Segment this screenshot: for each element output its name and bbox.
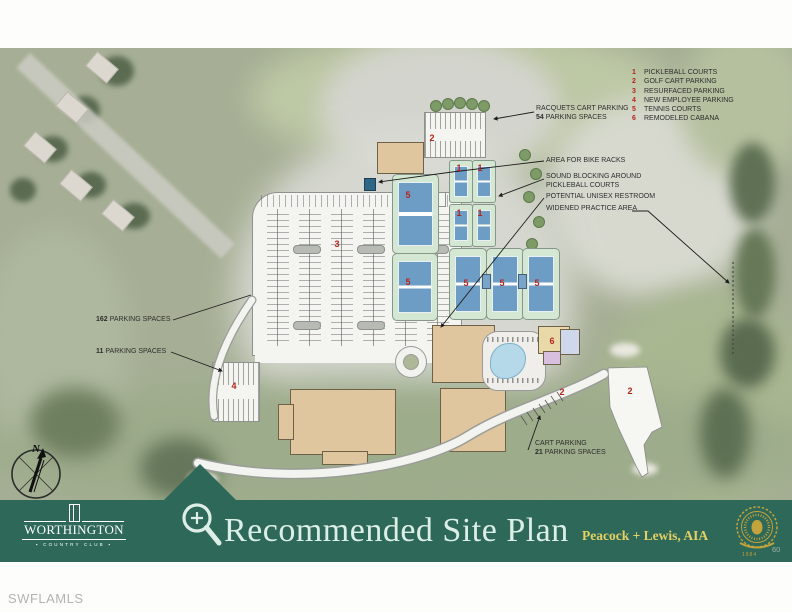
new-employee-parking xyxy=(212,362,260,422)
club-subtitle-text: COUNTRY CLUB xyxy=(43,542,105,547)
legend-item-label: RESURFACED PARKING xyxy=(644,88,725,95)
tree xyxy=(519,149,531,161)
tree-cluster xyxy=(700,388,750,478)
legend-item: 2GOLF CART PARKING xyxy=(632,77,734,86)
tree xyxy=(442,98,454,110)
bike-racks-area xyxy=(364,178,376,191)
tennis-court xyxy=(392,253,438,321)
tree xyxy=(430,100,442,112)
marker-new-employee-parking: 4 xyxy=(228,381,240,391)
club-subtitle: ▪ COUNTRY CLUB ▪ xyxy=(22,542,126,547)
legend-item-number: 1 xyxy=(632,68,644,77)
clubhouse-building xyxy=(290,389,396,455)
legend-item-number: 2 xyxy=(632,77,644,86)
label-racquets-cart-parking: RACQUETS CART PARKING 54PARKING SPACES xyxy=(536,104,629,122)
label-line: PARKING SPACES xyxy=(105,348,166,355)
club-name: WORTHINGTON xyxy=(22,522,126,540)
tree xyxy=(478,100,490,112)
sand-bunker xyxy=(632,463,658,475)
court-gate xyxy=(482,274,491,289)
court-gate xyxy=(518,274,527,289)
space-count: 21 xyxy=(535,449,545,456)
tree xyxy=(523,191,535,203)
tree xyxy=(533,216,545,228)
tree-cluster xyxy=(735,228,775,318)
marker-pickleball-courts: 1 xyxy=(453,163,465,173)
legend-item-number: 6 xyxy=(632,114,644,123)
worthington-logo: WORTHINGTON ▪ COUNTRY CLUB ▪ xyxy=(22,504,126,556)
legend-item: 5TENNIS COURTS xyxy=(632,105,734,114)
magnifier-icon xyxy=(180,501,226,549)
traffic-circle xyxy=(396,347,426,377)
marker-golf-cart-parking: 2 xyxy=(426,133,438,143)
architect-credit: Peacock + Lewis, AIA xyxy=(582,528,708,544)
label-line: PICKLEBALL COURTS xyxy=(546,181,641,190)
clubhouse-building xyxy=(322,451,368,465)
label-bike-racks: AREA FOR BIKE RACKS xyxy=(546,156,625,165)
parking-stalls xyxy=(267,209,289,347)
racquets-building xyxy=(377,142,424,174)
square-divider-icon: ▪ xyxy=(36,542,40,547)
compass-rose: N xyxy=(6,440,68,500)
tree xyxy=(530,168,542,180)
seal-year: 1984 xyxy=(742,552,757,558)
label-sound-blocking: SOUND BLOCKING AROUND PICKLEBALL COURTS xyxy=(546,172,641,190)
tree xyxy=(466,98,478,110)
legend: 1PICKLEBALL COURTS 2GOLF CART PARKING 3R… xyxy=(632,68,734,124)
lounge-chairs xyxy=(487,337,541,342)
label-line: 54PARKING SPACES xyxy=(536,113,629,122)
legend-item: 6REMODELED CABANA xyxy=(632,114,734,123)
marker-tennis-courts: 5 xyxy=(402,277,414,287)
space-count: 54 xyxy=(536,114,546,121)
title-banner: WORTHINGTON ▪ COUNTRY CLUB ▪ Recommended… xyxy=(0,500,792,562)
tree-cluster xyxy=(730,143,775,223)
marker-golf-cart-parking: 2 xyxy=(624,386,636,396)
label-practice-area: WIDENED PRACTICE AREA xyxy=(546,204,637,213)
legend-item-label: TENNIS COURTS xyxy=(644,106,701,113)
marker-tennis-courts: 5 xyxy=(496,278,508,288)
parking-stalls xyxy=(331,209,353,347)
square-divider-icon: ▪ xyxy=(108,542,112,547)
label-line: PARKING SPACES xyxy=(110,316,171,323)
label-line: RACQUETS CART PARKING xyxy=(536,104,629,113)
site-plan-flyer: 1PICKLEBALL COURTS 2GOLF CART PARKING 3R… xyxy=(0,0,792,612)
parking-island xyxy=(293,245,321,254)
tennis-court-surface xyxy=(398,261,432,313)
remodeled-cabana xyxy=(543,351,561,365)
space-count: 11 xyxy=(96,348,105,355)
legend-item-label: GOLF CART PARKING xyxy=(644,78,717,85)
lounge-chairs xyxy=(487,378,541,383)
label-unisex-restroom: POTENTIAL UNISEX RESTROOM xyxy=(546,192,655,201)
remodeled-cabana xyxy=(560,329,580,355)
legend-item: 4NEW EMPLOYEE PARKING xyxy=(632,96,734,105)
aerial-site-plan-map: 1PICKLEBALL COURTS 2GOLF CART PARKING 3R… xyxy=(0,48,792,500)
label-line: SOUND BLOCKING AROUND xyxy=(546,172,641,181)
tennis-court xyxy=(392,174,439,254)
compass-north-label: N xyxy=(31,443,41,455)
drive-aisle xyxy=(255,346,460,363)
space-count: 162 xyxy=(96,316,110,323)
marker-resurfaced-parking: 3 xyxy=(331,239,343,249)
marker-pickleball-courts: 1 xyxy=(474,163,486,173)
marker-tennis-courts: 5 xyxy=(402,190,414,200)
legend-item-number: 5 xyxy=(632,105,644,114)
tree-cluster xyxy=(720,318,775,388)
legend-item-number: 3 xyxy=(632,87,644,96)
label-line: 21PARKING SPACES xyxy=(535,448,606,457)
legend-item-label: PICKLEBALL COURTS xyxy=(644,69,717,76)
label-11-spaces: 11PARKING SPACES xyxy=(96,347,166,356)
label-line: PARKING SPACES xyxy=(546,114,607,121)
legend-item-number: 4 xyxy=(632,96,644,105)
marker-pickleball-courts: 1 xyxy=(474,208,486,218)
label-line: PARKING SPACES xyxy=(545,449,606,456)
tree-cluster xyxy=(10,178,36,202)
clubhouse-building xyxy=(440,388,506,452)
legend-item-label: NEW EMPLOYEE PARKING xyxy=(644,97,734,104)
page-number: 60 xyxy=(772,545,780,554)
parking-island xyxy=(357,245,385,254)
parking-island xyxy=(357,321,385,330)
marker-remodeled-cabana: 6 xyxy=(546,336,558,346)
legend-item-label: REMODELED CABANA xyxy=(644,115,719,122)
mls-watermark: SWFLAMLS xyxy=(8,591,84,606)
label-cart-parking: CART PARKING 21PARKING SPACES xyxy=(535,439,606,457)
marker-golf-cart-parking: 2 xyxy=(556,387,568,397)
clubhouse-building xyxy=(278,404,294,440)
marker-tennis-courts: 5 xyxy=(531,278,543,288)
label-162-spaces: 162PARKING SPACES xyxy=(96,315,171,324)
legend-item: 3RESURFACED PARKING xyxy=(632,87,734,96)
parking-island xyxy=(293,321,321,330)
marker-pickleball-courts: 1 xyxy=(453,208,465,218)
banner-triangle xyxy=(163,464,237,501)
marker-tennis-courts: 5 xyxy=(460,278,472,288)
sand-bunker xyxy=(610,343,640,357)
label-line: CART PARKING xyxy=(535,439,606,448)
aerial-texture xyxy=(0,378,792,500)
tower-icon xyxy=(69,504,80,522)
tree xyxy=(454,97,466,109)
page-title: Recommended Site Plan xyxy=(224,505,569,557)
legend-item: 1PICKLEBALL COURTS xyxy=(632,68,734,77)
